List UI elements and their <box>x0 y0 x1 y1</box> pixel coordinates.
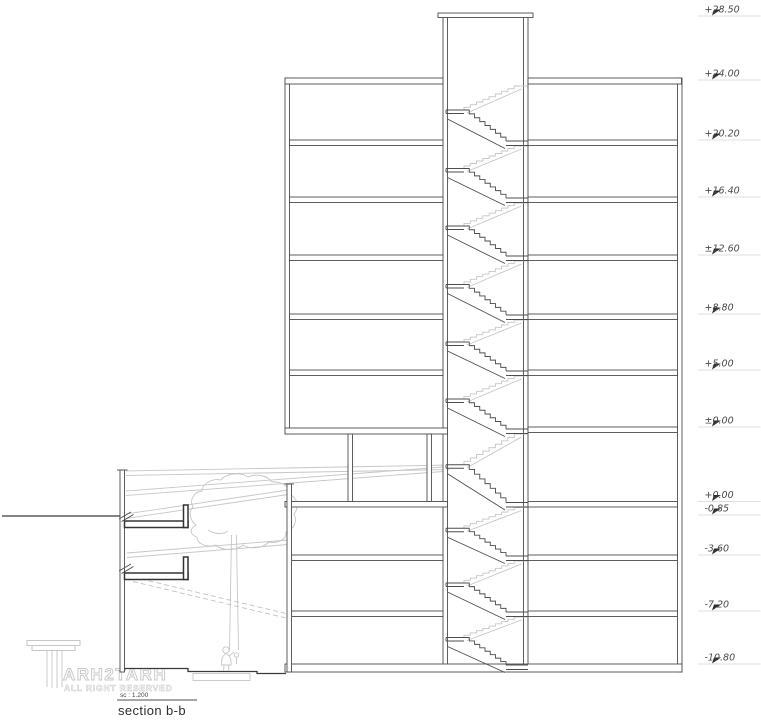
stair-soffit <box>448 537 506 563</box>
stair-flight-far <box>464 203 521 226</box>
stair-soffit <box>448 178 506 206</box>
wall-segment <box>528 140 678 146</box>
stair-flight-cut <box>464 285 506 316</box>
stair-flight-cut <box>464 169 506 199</box>
stair-flight-far <box>464 508 521 529</box>
wall-segment <box>528 197 678 203</box>
wall-segment <box>438 13 533 18</box>
wall-segment <box>290 370 444 376</box>
wall-segment <box>290 197 444 203</box>
wall-segment <box>290 140 444 146</box>
elevation-marker: +8.80 <box>698 303 761 315</box>
elevation-label: +0.00 <box>705 490 734 501</box>
person-figure <box>224 652 235 671</box>
wall-segment <box>528 314 678 320</box>
annex-upstand <box>184 557 189 580</box>
annex-slab <box>125 521 189 528</box>
ramp-line <box>126 495 288 519</box>
drawing-title: section b-b <box>118 703 186 718</box>
elevation-marker: +28.50 <box>698 5 761 17</box>
stair-soffit <box>448 474 506 510</box>
elevation-markers: +28.50+24.00+20.20+16.40±12.60+8.80+5.00… <box>698 5 761 665</box>
drawing-canvas: ARH2TARH ALL RIGHT RESERVED +28.50+24.00… <box>0 0 761 720</box>
stair-soffit-far <box>467 89 522 113</box>
wall-segment <box>292 611 444 617</box>
person-figure <box>234 653 238 657</box>
elevation-marker: -7.20 <box>698 600 761 612</box>
building-structure <box>2 13 682 674</box>
stair-flight-far <box>464 376 521 399</box>
stair-soffit-far <box>467 149 522 172</box>
wall-segment <box>285 78 443 84</box>
annex-slab <box>125 573 189 580</box>
elevation-marker: ±0.00 <box>698 416 761 428</box>
wall-segment <box>290 314 444 320</box>
stair-flight-far <box>464 617 521 638</box>
elevation-label: +16.40 <box>705 186 740 197</box>
stair-flight-far <box>464 561 521 583</box>
stair-flight-cut <box>464 638 506 666</box>
elevation-label: +20.20 <box>705 129 740 140</box>
wall-segment <box>285 428 448 434</box>
logo: ARH2TARH ALL RIGHT RESERVED <box>27 641 173 694</box>
wall-segment <box>292 555 444 561</box>
stair-flight-far <box>464 434 521 465</box>
stair-soffit <box>448 408 506 437</box>
wall-segment <box>528 427 678 433</box>
stair-soffit <box>448 119 506 149</box>
elevation-label: -10.80 <box>705 653 736 664</box>
stair-soffit-far <box>467 379 522 402</box>
ramp-line <box>126 467 443 491</box>
elevation-label: +5.00 <box>705 359 734 370</box>
stair-flight-cut <box>464 528 506 556</box>
wall-segment <box>528 611 678 617</box>
elevation-marker: -10.80 <box>698 653 761 665</box>
wall-segment <box>524 16 529 665</box>
elevation-label: +28.50 <box>705 5 740 16</box>
foreground-figures <box>221 647 238 671</box>
stair-soffit <box>448 235 506 264</box>
wall-segment <box>427 434 432 502</box>
stair-soffit-far <box>467 264 522 288</box>
stair-flight-cut <box>464 342 506 371</box>
wall-segment <box>528 555 678 561</box>
stair-flight-far <box>464 146 521 169</box>
annex-upstand <box>184 505 189 528</box>
stair-flight-cut <box>464 465 506 503</box>
stair-soffit-far <box>467 564 522 586</box>
stair-soffit-far <box>467 206 522 229</box>
logo-column-capital <box>32 646 75 651</box>
logo-tagline: ALL RIGHT RESERVED <box>64 683 173 693</box>
stair-soffit-far <box>467 323 522 345</box>
logo-column-capital <box>27 641 80 646</box>
wall-segment <box>528 78 682 84</box>
elevation-marker: +0.00 <box>698 490 761 502</box>
wall-segment <box>528 255 678 261</box>
stair-flight-cut <box>464 399 506 429</box>
stair-soffit <box>448 294 506 323</box>
wall-segment <box>348 434 353 502</box>
elevation-marker: -0.85 <box>698 504 761 516</box>
wall-segment <box>528 370 678 376</box>
elevation-label: +24.00 <box>705 69 740 80</box>
tree-canopy-detail <box>208 530 228 534</box>
stair-flight-far <box>464 86 521 110</box>
elevation-marker: +16.40 <box>698 186 761 198</box>
title-block: sc : 1.200 section b-b <box>117 692 197 718</box>
hidden-ramp-line <box>133 577 288 614</box>
hidden-ramp-line <box>133 582 288 619</box>
stair-flight-far <box>464 320 521 342</box>
elevation-marker: +5.00 <box>698 359 761 371</box>
elevation-label: -3.60 <box>705 544 730 555</box>
scale-note: sc : 1.200 <box>120 692 149 699</box>
stair-flight-cut <box>464 226 506 256</box>
elevation-marker: ±12.60 <box>698 244 761 256</box>
stair-flight-far <box>464 261 521 285</box>
stair-flight-cut <box>464 110 506 141</box>
stair-soffit-far <box>467 511 522 532</box>
stair-soffit-far <box>467 437 522 468</box>
ramp-line <box>126 472 443 496</box>
stair-soffit <box>448 592 506 620</box>
tree-trunk <box>230 535 232 650</box>
wall-segment <box>290 255 444 261</box>
wall-segment <box>120 470 125 672</box>
stair-soffit-far <box>467 620 522 641</box>
tree-trunk <box>237 535 239 650</box>
elevation-label: -7.20 <box>705 600 730 611</box>
wall-segment <box>678 78 683 672</box>
elevation-label: ±0.00 <box>705 416 734 427</box>
tree-pit <box>193 674 250 681</box>
elevation-label: +8.80 <box>705 303 734 314</box>
elevation-marker: +20.20 <box>698 129 761 141</box>
elevation-label: ±12.60 <box>705 244 740 255</box>
elevation-marker: -3.60 <box>698 544 761 556</box>
person-figure <box>223 647 229 653</box>
stair-soffit <box>448 351 506 379</box>
building-section-drawing: ARH2TARH ALL RIGHT RESERVED +28.50+24.00… <box>0 0 761 720</box>
elevation-label: -0.85 <box>705 504 730 515</box>
wall-segment <box>285 664 682 672</box>
wall-segment <box>285 78 290 434</box>
wall-segment <box>528 502 678 508</box>
stair-flight-cut <box>464 583 506 612</box>
wall-segment <box>287 484 292 672</box>
wall-segment <box>285 502 448 508</box>
staircase <box>446 86 528 673</box>
elevation-marker: +24.00 <box>698 69 761 81</box>
